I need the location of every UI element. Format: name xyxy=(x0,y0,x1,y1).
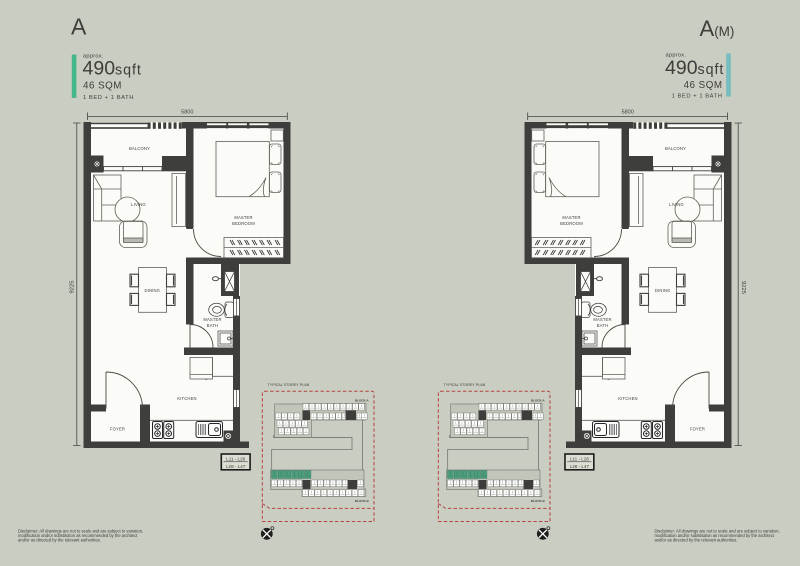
svg-text:L11 - L26: L11 - L26 xyxy=(570,456,590,461)
svg-text:BALCONY: BALCONY xyxy=(665,146,686,151)
svg-text:MASTER: MASTER xyxy=(562,215,580,220)
svg-text:MASTER: MASTER xyxy=(203,317,221,322)
svg-text:and/or as directed by the rele: and/or as directed by the relevant autho… xyxy=(655,538,738,543)
svg-text:DINING: DINING xyxy=(655,288,671,293)
svg-text:46 SQM: 46 SQM xyxy=(83,81,122,92)
svg-text:LIVING: LIVING xyxy=(669,202,684,207)
svg-text:FOYER: FOYER xyxy=(110,427,125,432)
svg-text:LIVING: LIVING xyxy=(131,202,146,207)
svg-text:BEDROOM: BEDROOM xyxy=(560,221,583,226)
svg-text:9225: 9225 xyxy=(740,281,746,294)
svg-text:1 BED + 1 BATH: 1 BED + 1 BATH xyxy=(83,95,134,101)
svg-text:1 BED + 1 BATH: 1 BED + 1 BATH xyxy=(672,94,723,100)
svg-text:L28 - L47: L28 - L47 xyxy=(570,464,590,469)
svg-text:KITCHEN: KITCHEN xyxy=(177,396,196,401)
svg-text:L11 - L26: L11 - L26 xyxy=(226,456,246,461)
svg-text:KITCHEN: KITCHEN xyxy=(618,396,637,401)
svg-text:L28 - L47: L28 - L47 xyxy=(226,464,246,469)
svg-text:and/or as directed by the rele: and/or as directed by the relevant autho… xyxy=(18,538,101,543)
svg-text:46 SQM: 46 SQM xyxy=(684,80,723,91)
svg-text:DINING: DINING xyxy=(145,288,161,293)
svg-text:MASTER: MASTER xyxy=(234,215,252,220)
svg-text:BALCONY: BALCONY xyxy=(129,146,150,151)
svg-text:A: A xyxy=(71,14,87,40)
svg-text:5800: 5800 xyxy=(181,110,193,116)
svg-text:5800: 5800 xyxy=(622,110,634,116)
svg-text:9225: 9225 xyxy=(70,281,76,294)
svg-text:BATH: BATH xyxy=(597,323,608,328)
svg-text:MASTER: MASTER xyxy=(593,317,611,322)
svg-text:BEDROOM: BEDROOM xyxy=(232,221,255,226)
svg-text:BATH: BATH xyxy=(207,323,218,328)
svg-text:FOYER: FOYER xyxy=(690,427,705,432)
